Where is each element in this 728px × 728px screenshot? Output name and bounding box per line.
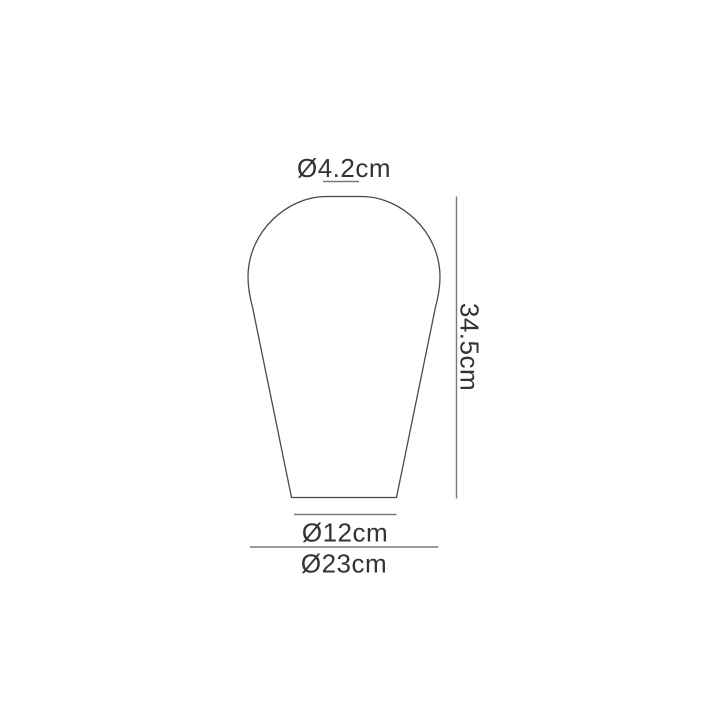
dimension-diagram: Ø4.2cm 34.5cm Ø12cm Ø23cm <box>0 0 728 728</box>
max-diameter-label: Ø23cm <box>301 549 387 579</box>
diagram-canvas: Ø4.2cm 34.5cm Ø12cm Ø23cm <box>0 0 728 728</box>
height-label: 34.5cm <box>455 303 485 391</box>
top-diameter-label: Ø4.2cm <box>297 153 391 183</box>
shade-outline <box>248 197 440 498</box>
base-diameter-label: Ø12cm <box>302 518 388 548</box>
